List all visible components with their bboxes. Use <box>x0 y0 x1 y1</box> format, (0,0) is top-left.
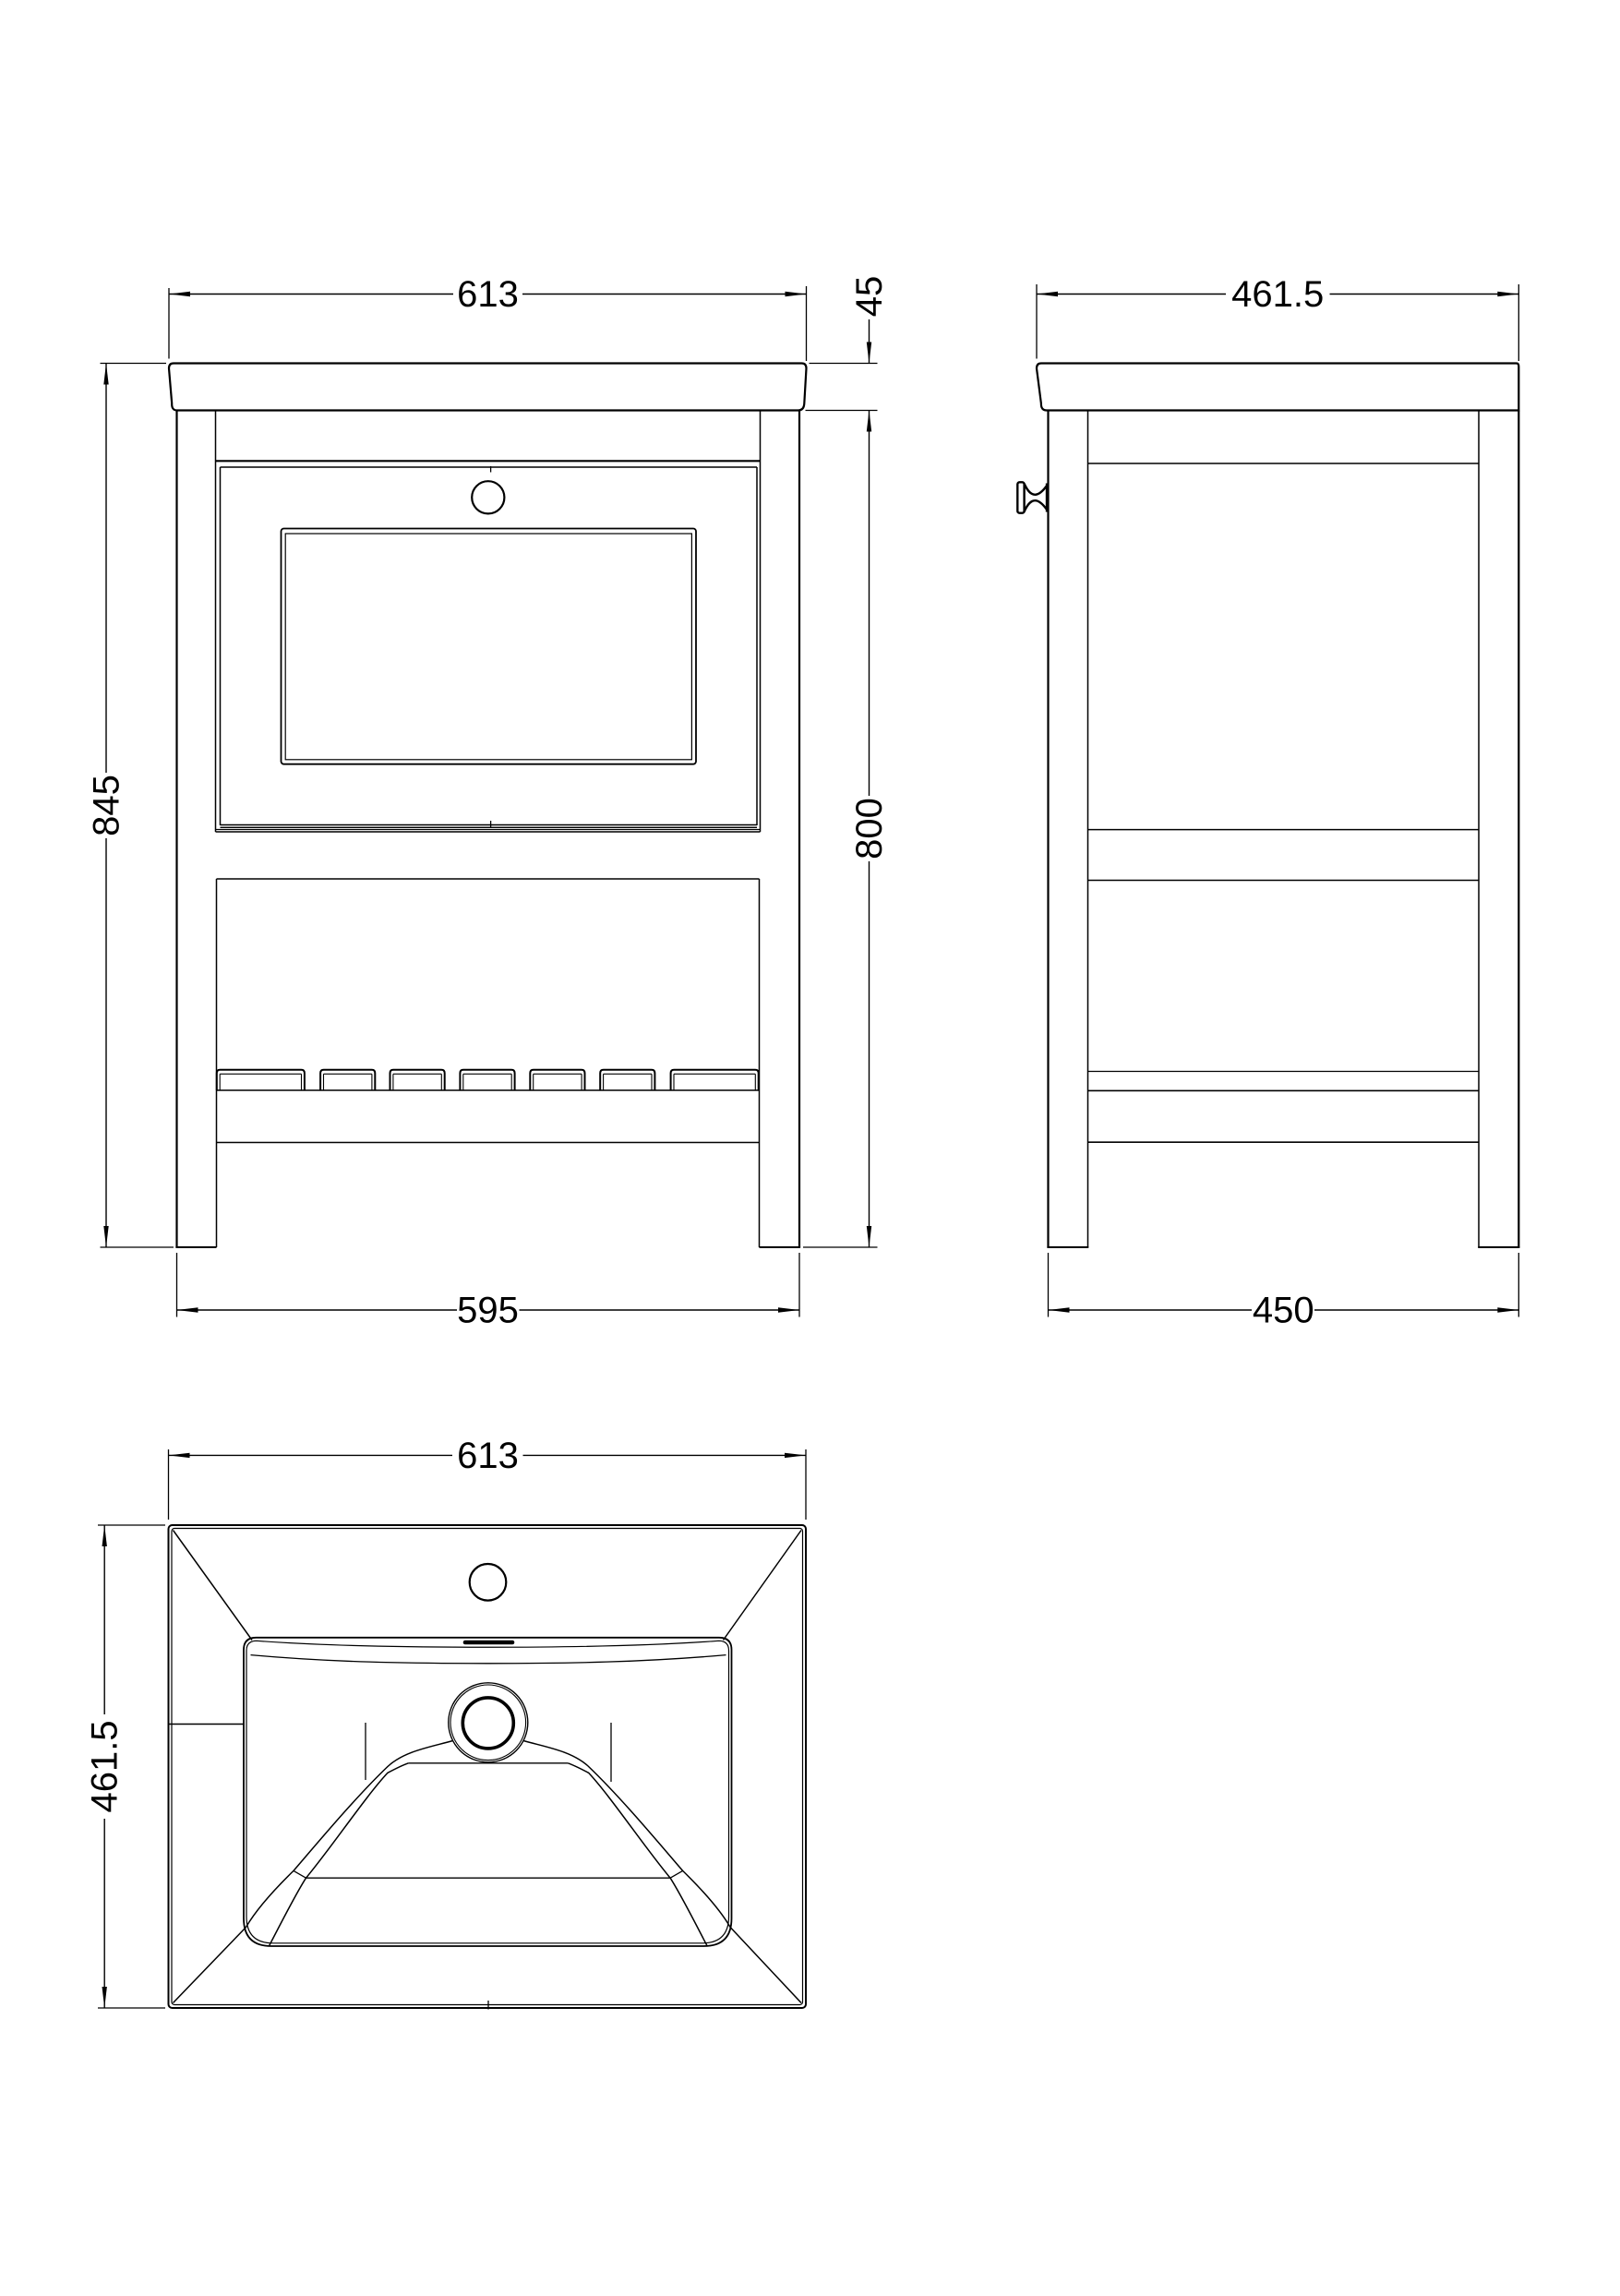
svg-text:845: 845 <box>87 775 127 836</box>
svg-text:45: 45 <box>849 276 890 318</box>
svg-text:613: 613 <box>457 1436 519 1476</box>
svg-text:800: 800 <box>849 798 890 859</box>
svg-text:613: 613 <box>457 274 519 315</box>
svg-text:461.5: 461.5 <box>85 1720 126 1812</box>
svg-text:461.5: 461.5 <box>1231 274 1324 315</box>
svg-text:450: 450 <box>1253 1291 1314 1331</box>
svg-text:595: 595 <box>457 1291 519 1331</box>
